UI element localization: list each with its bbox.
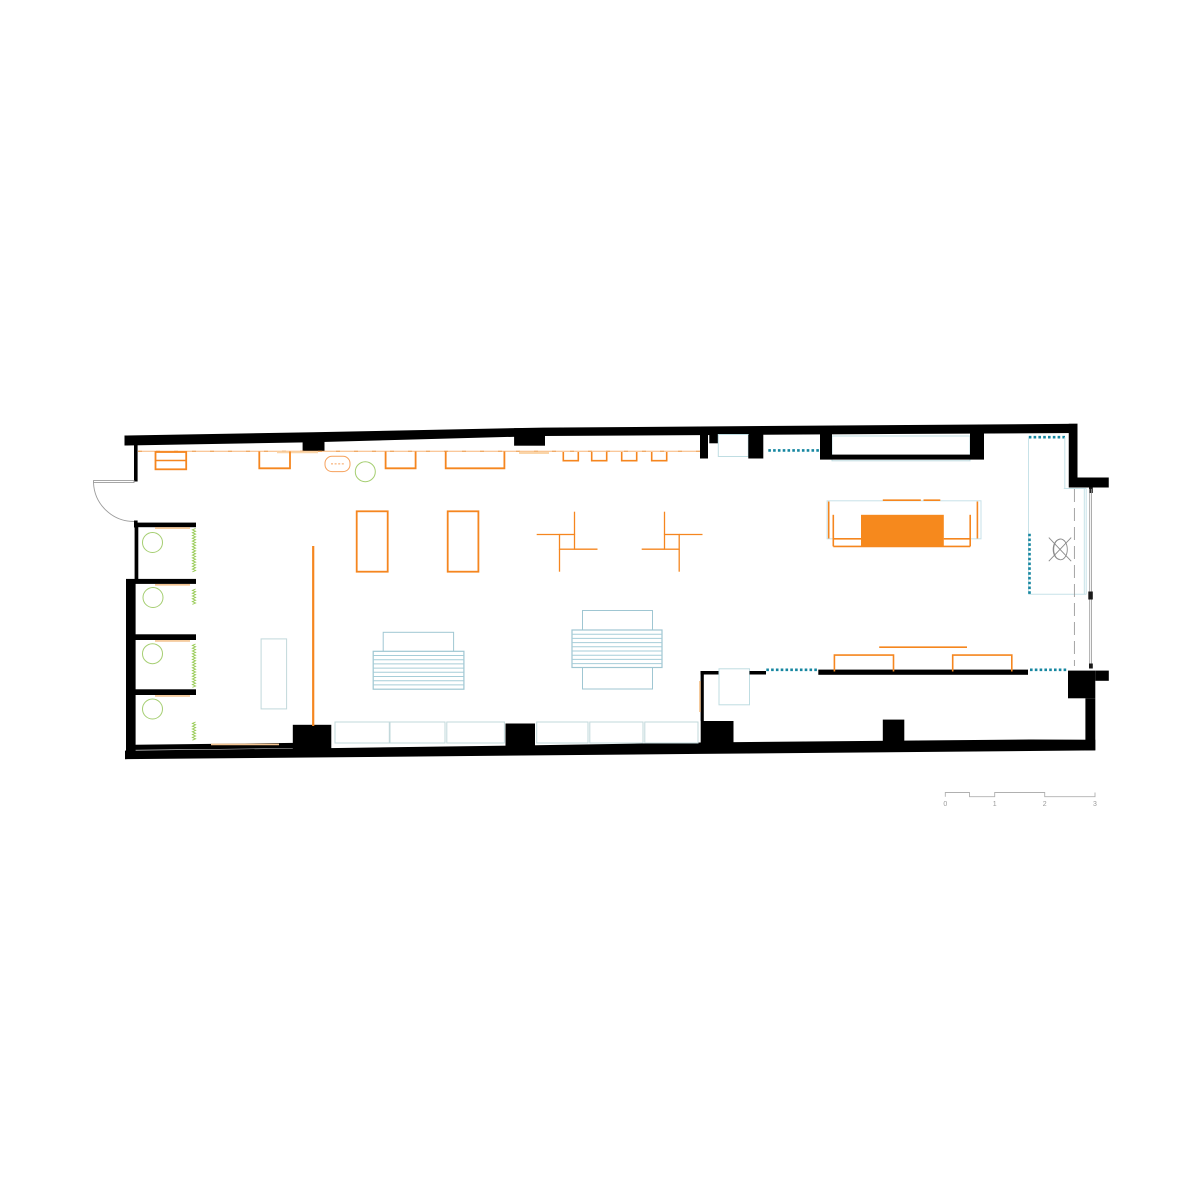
svg-text:3: 3 xyxy=(1093,801,1097,808)
svg-text:0: 0 xyxy=(943,801,947,808)
svg-text:2: 2 xyxy=(1043,801,1047,808)
svg-text:1: 1 xyxy=(993,801,997,808)
